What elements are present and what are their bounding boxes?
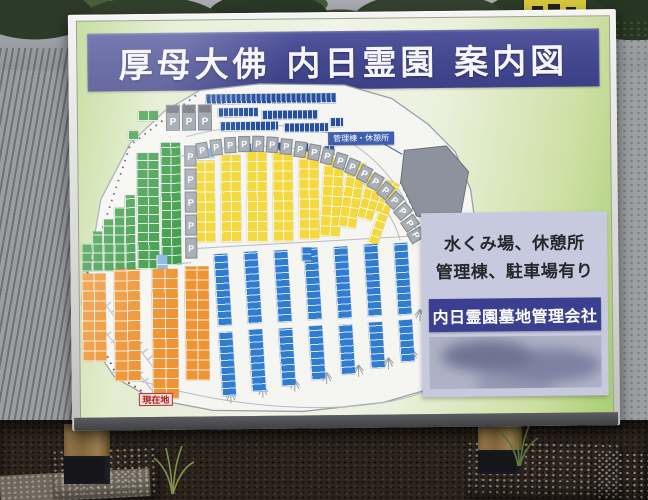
- plot-block-n: [330, 118, 343, 127]
- plot-block-g: [103, 219, 114, 271]
- plot-block-y: [194, 160, 215, 242]
- plot-block-g: [160, 143, 181, 265]
- parking-cell: P: [185, 238, 197, 259]
- plot-block-g: [114, 207, 125, 271]
- plot-block-g: [125, 195, 136, 271]
- parking-cell: P: [166, 105, 180, 131]
- parking-cell: P: [238, 136, 250, 152]
- plot-block-n: [284, 123, 328, 132]
- current-location-label: 現在地: [139, 393, 173, 406]
- photo-of-cemetery-guide-signboard: 厚母大佛 内日霊園 案内図: [0, 0, 648, 500]
- company-banner: 内日霊園墓地管理会社: [429, 297, 601, 332]
- plot-block-g: [81, 244, 91, 272]
- parking-cell: P: [293, 141, 307, 158]
- parking-cell: P: [185, 192, 197, 213]
- parking-cell: P: [280, 138, 293, 155]
- parking-cell: P: [182, 105, 196, 131]
- building-label: 管理棟・休憩所: [328, 131, 394, 145]
- parking-cell: P: [185, 215, 197, 236]
- info-panel: 水くみ場、休憩所 管理棟、駐車場有り 内日霊園墓地管理会社: [421, 211, 609, 397]
- plot-block-o: [114, 269, 141, 381]
- plot-block-b: [398, 320, 415, 363]
- blur-smudge: [429, 335, 602, 389]
- plot-block-g: [138, 111, 158, 121]
- brush-left: [0, 48, 76, 432]
- plot-block-g: [128, 131, 138, 140]
- parking-cell: P: [224, 137, 237, 154]
- plot-block-o: [184, 266, 209, 380]
- plot-block-o: [152, 269, 179, 399]
- plot-block-y: [246, 152, 267, 242]
- plot-block-b: [301, 247, 311, 261]
- parking-cell: P: [195, 142, 209, 160]
- plot-block-y: [272, 151, 293, 242]
- company-name: 内日霊園墓地管理会社: [432, 302, 597, 328]
- plot-block-b: [213, 253, 231, 326]
- parking-cell: P: [184, 169, 196, 190]
- signboard: 厚母大佛 内日霊園 案内図: [68, 9, 620, 431]
- parking-cell: P: [209, 139, 223, 156]
- signboard-face: 厚母大佛 内日霊園 案内図: [76, 15, 614, 419]
- plot-block-b: [243, 251, 261, 324]
- concrete-slab-far-right: [596, 452, 648, 500]
- plot-block-g: [136, 153, 159, 269]
- parking-cell: P: [266, 136, 279, 153]
- parking-cell: P: [252, 136, 264, 152]
- plot-block-n: [220, 122, 278, 132]
- plot-block-o: [82, 273, 107, 361]
- grass-tuft: [150, 440, 196, 496]
- info-line-2: 管理棟、駐車場有り: [421, 256, 607, 283]
- plot-block-b: [308, 326, 325, 381]
- signboard-post-left: [64, 424, 110, 484]
- plot-block-b: [278, 328, 296, 387]
- blurred-phone-area: [429, 335, 602, 389]
- parking-cell: P: [184, 146, 196, 167]
- plot-block-n: [206, 93, 336, 104]
- plot-block-n: [218, 108, 258, 117]
- plot-block-b: [363, 244, 381, 317]
- plot-block-b: [218, 331, 236, 396]
- plot-block-y: [298, 151, 319, 239]
- post-base: [64, 456, 110, 484]
- plot-block-y: [220, 155, 241, 242]
- plot-block-b: [393, 243, 411, 316]
- info-line-1: 水くみ場、休憩所: [421, 228, 607, 255]
- plot-block-b: [273, 250, 291, 323]
- plot-block-b: [368, 322, 385, 369]
- plot-block-n: [262, 110, 318, 120]
- plot-block-b: [333, 246, 351, 319]
- parking-cell: P: [198, 104, 212, 130]
- plot-block-b: [248, 329, 266, 392]
- plot-block-g: [92, 232, 102, 272]
- plot-block-b: [338, 324, 355, 375]
